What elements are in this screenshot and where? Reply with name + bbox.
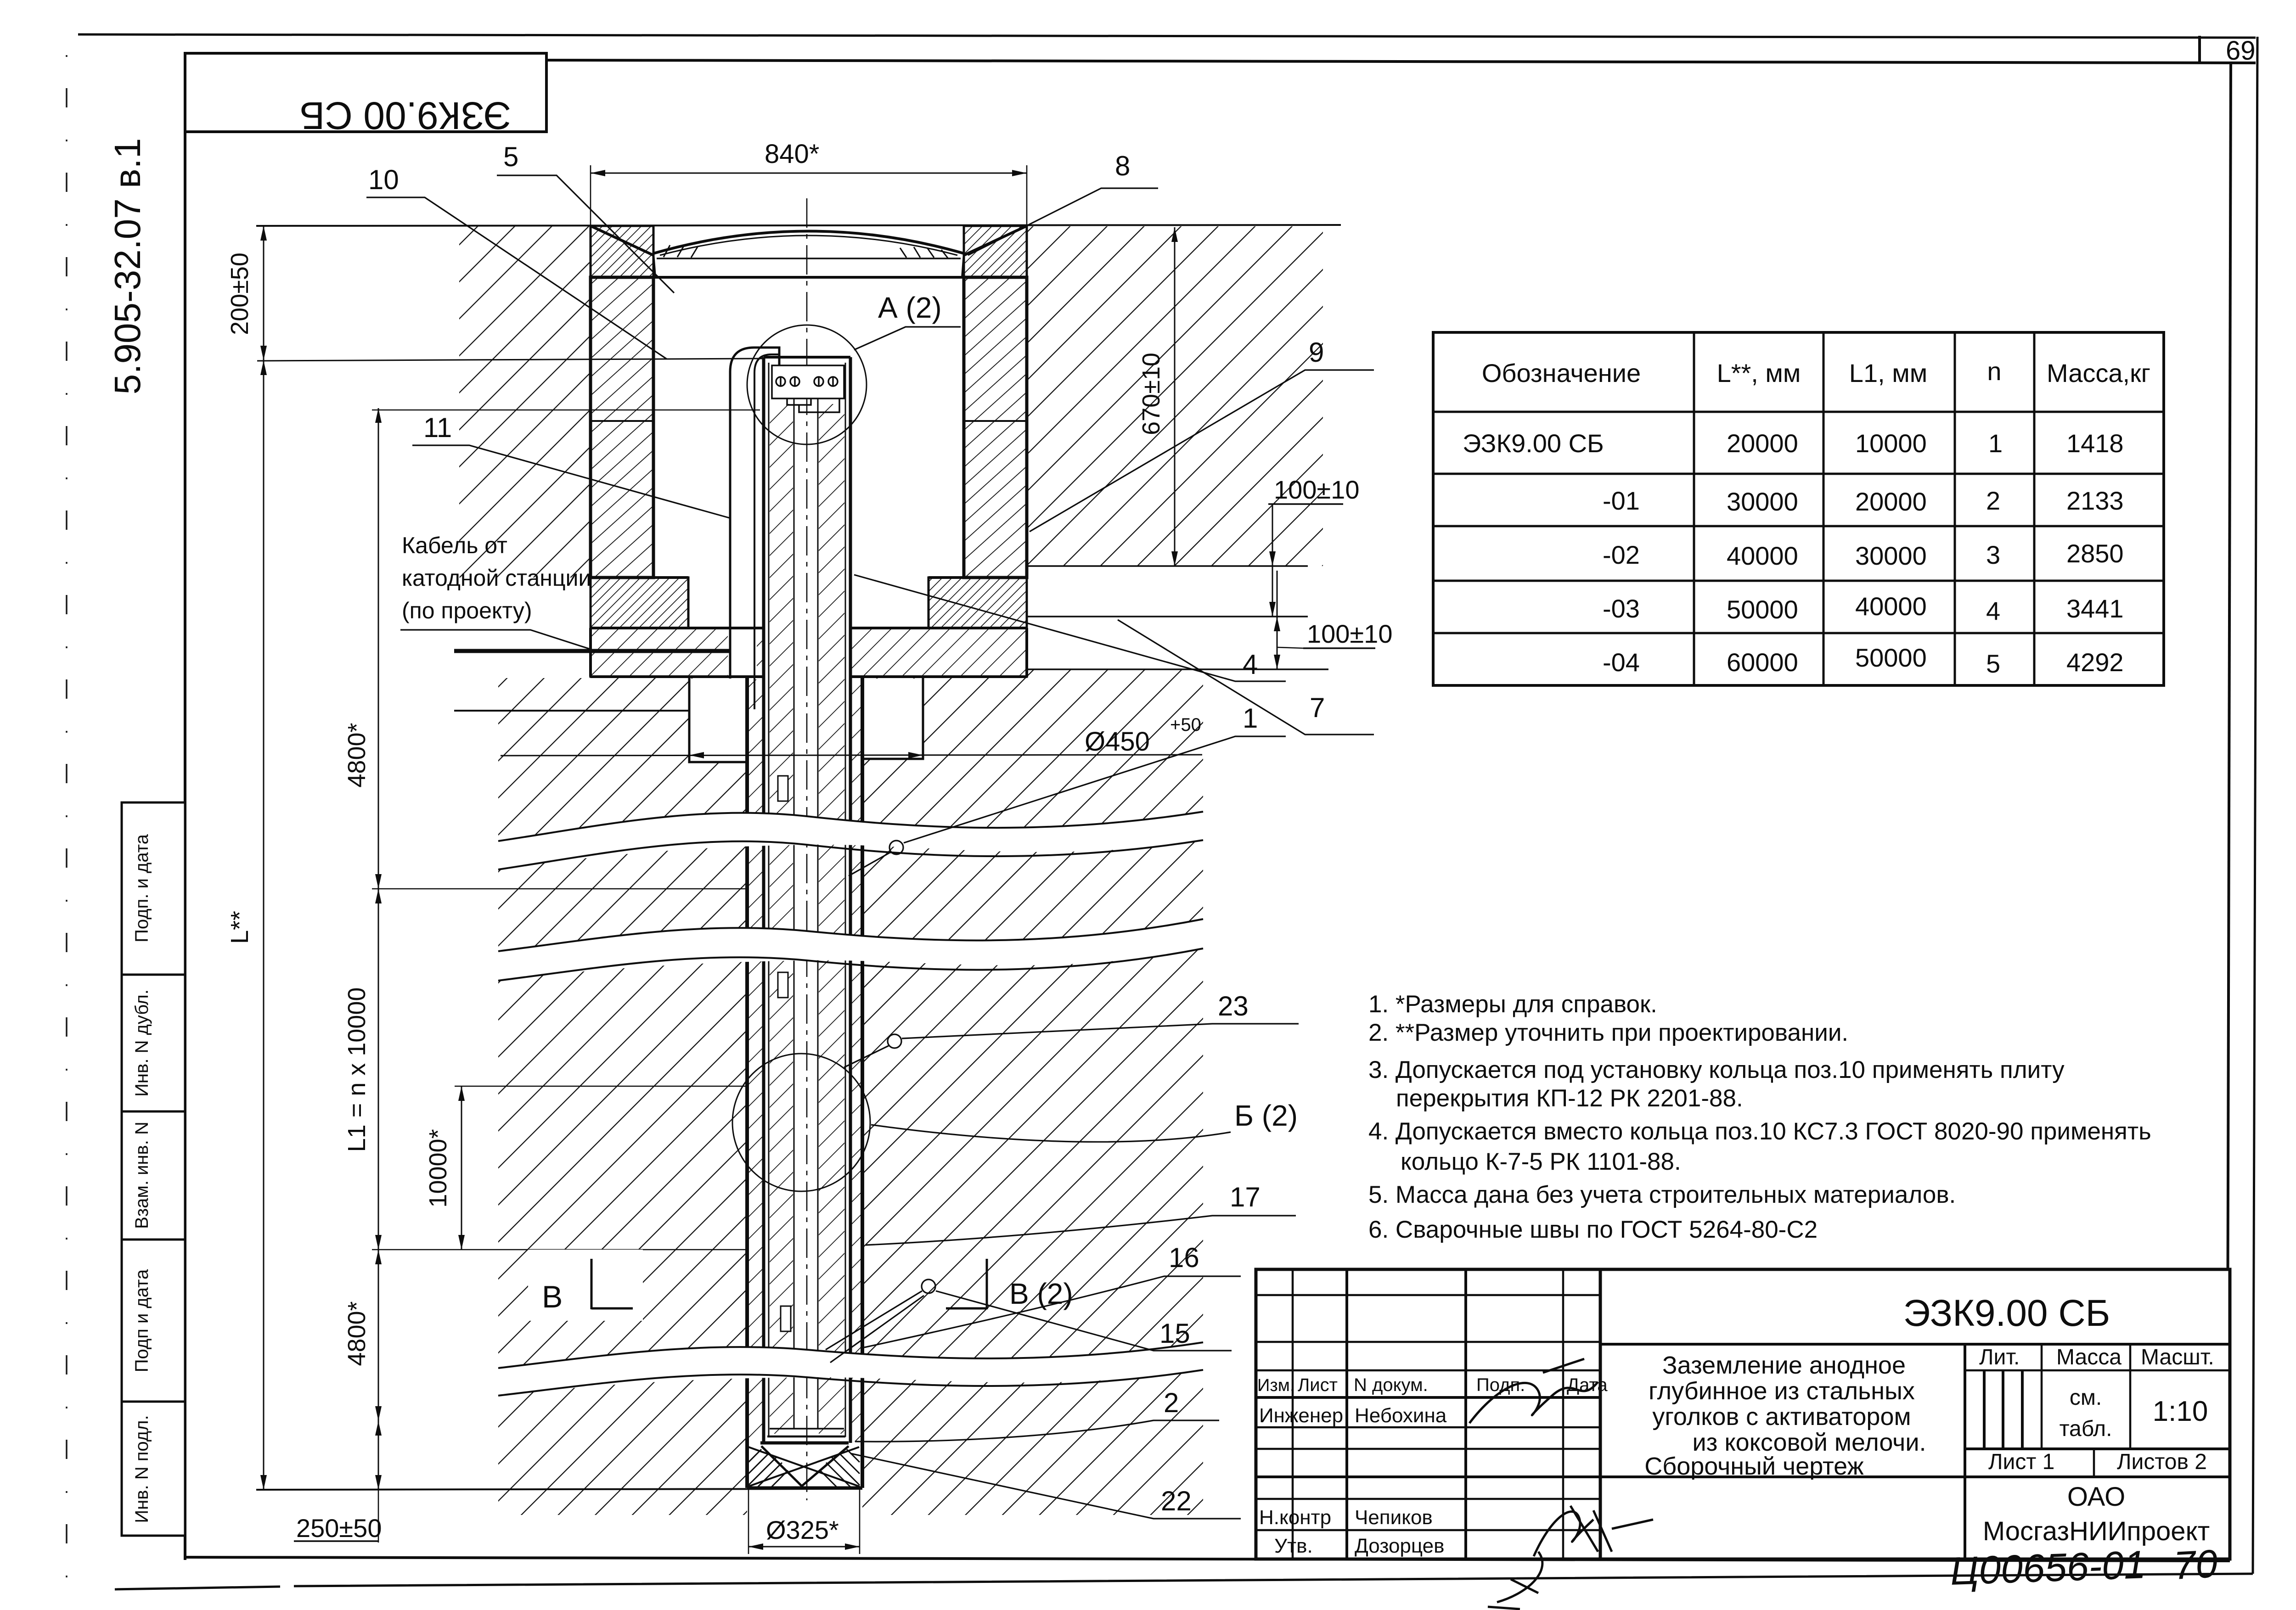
svg-text:3: 3 xyxy=(1986,540,2000,569)
svg-text:Подп и дата: Подп и дата xyxy=(132,1269,152,1372)
svg-text:-03: -03 xyxy=(1603,594,1640,623)
svg-text:ЭЗК9.00 СБ: ЭЗК9.00 СБ xyxy=(1903,1292,2110,1334)
svg-text:50000: 50000 xyxy=(1855,643,1927,672)
svg-text:Подп. и дата: Подп. и дата xyxy=(132,834,152,942)
svg-text:Дозорцев: Дозорцев xyxy=(1355,1535,1444,1557)
svg-text:Изм.: Изм. xyxy=(1257,1376,1294,1395)
svg-text:670±10: 670±10 xyxy=(1137,353,1165,435)
svg-text:30000: 30000 xyxy=(1727,487,1798,516)
svg-text:2: 2 xyxy=(1986,486,2000,515)
svg-text:Масса: Масса xyxy=(2056,1345,2122,1369)
svg-text:4292: 4292 xyxy=(2066,648,2124,677)
svg-text:60000: 60000 xyxy=(1727,648,1798,677)
svg-text:Ц00656-01: Ц00656-01 xyxy=(1949,1543,2146,1593)
svg-text:Инв. N подл.: Инв. N подл. xyxy=(132,1415,152,1523)
svg-text:Листов 2: Листов 2 xyxy=(2117,1450,2207,1474)
svg-text:L1 = n x 10000: L1 = n x 10000 xyxy=(343,987,371,1152)
svg-text:5: 5 xyxy=(503,141,518,172)
svg-text:см.: см. xyxy=(2070,1386,2102,1410)
svg-text:ЭЗК9.00 СБ: ЭЗК9.00 СБ xyxy=(1463,429,1604,458)
svg-text:Лит.: Лит. xyxy=(1979,1345,2020,1369)
svg-text:69: 69 xyxy=(2226,36,2256,66)
svg-text:100±10: 100±10 xyxy=(1274,475,1359,504)
svg-text:5: 5 xyxy=(1986,649,2000,678)
svg-text:Кабель от: Кабель от xyxy=(402,533,507,558)
svg-text:5. Масса дана без учета строит: 5. Масса дана без учета строительных мат… xyxy=(1368,1181,1956,1208)
svg-text:-04: -04 xyxy=(1603,648,1640,677)
svg-text:10: 10 xyxy=(368,164,399,195)
svg-text:L1, мм: L1, мм xyxy=(1849,359,1927,387)
svg-text:5.905-32.07 в.1: 5.905-32.07 в.1 xyxy=(107,138,148,394)
svg-text:9: 9 xyxy=(1309,337,1324,368)
svg-text:10000: 10000 xyxy=(1855,429,1927,458)
svg-text:+50: +50 xyxy=(1170,715,1201,735)
svg-text:ОАО: ОАО xyxy=(2067,1482,2125,1512)
svg-text:Инв. N дубл.: Инв. N дубл. xyxy=(132,989,152,1097)
svg-text:2850: 2850 xyxy=(2066,539,2124,568)
svg-text:Дата: Дата xyxy=(1567,1375,1608,1395)
svg-text:1: 1 xyxy=(1988,429,2003,458)
svg-text:2133: 2133 xyxy=(2066,486,2124,515)
svg-text:Обозначение: Обозначение xyxy=(1482,359,1641,387)
svg-text:20000: 20000 xyxy=(1855,487,1927,516)
svg-text:Б (2): Б (2) xyxy=(1234,1099,1298,1132)
svg-text:15: 15 xyxy=(1159,1318,1190,1349)
svg-text:8: 8 xyxy=(1115,151,1130,181)
svg-text:22: 22 xyxy=(1161,1486,1192,1516)
svg-text:Небохина: Небохина xyxy=(1355,1404,1447,1427)
svg-text:30000: 30000 xyxy=(1855,541,1927,570)
svg-text:6. Сварочные швы по ГОСТ 5264-: 6. Сварочные швы по ГОСТ 5264-80-С2 xyxy=(1368,1216,1818,1243)
svg-text:250±50: 250±50 xyxy=(296,1514,382,1543)
svg-text:4. Допускается вместо кольца п: 4. Допускается вместо кольца поз.10 КС7.… xyxy=(1368,1118,2151,1145)
svg-text:2: 2 xyxy=(1164,1387,1179,1418)
svg-text:4: 4 xyxy=(1243,649,1258,680)
svg-text:16: 16 xyxy=(1169,1242,1199,1273)
svg-text:840*: 840* xyxy=(765,139,819,169)
svg-text:А (2): А (2) xyxy=(878,291,942,324)
svg-text:L**: L** xyxy=(226,911,253,944)
svg-text:11: 11 xyxy=(423,412,452,443)
svg-text:23: 23 xyxy=(1218,991,1249,1021)
svg-text:ЭЗК9.00 СБ: ЭЗК9.00 СБ xyxy=(299,94,512,137)
svg-text:Н.контр: Н.контр xyxy=(1259,1506,1331,1529)
svg-text:табл.: табл. xyxy=(2060,1417,2112,1441)
svg-text:3. Допускается под установку к: 3. Допускается под установку кольца поз.… xyxy=(1368,1056,2065,1083)
svg-text:3441: 3441 xyxy=(2066,594,2124,623)
svg-text:4800*: 4800* xyxy=(343,723,371,787)
svg-text:7: 7 xyxy=(1310,692,1325,723)
svg-text:4: 4 xyxy=(1986,596,2000,625)
svg-text:1. *Размеры для справок.: 1. *Размеры для справок. xyxy=(1368,991,1657,1018)
svg-text:перекрытия КП-12 РК 2201-88.: перекрытия КП-12 РК 2201-88. xyxy=(1396,1085,1743,1112)
svg-text:кольцо К-7-5 РК 1101-88.: кольцо К-7-5 РК 1101-88. xyxy=(1401,1148,1681,1175)
svg-text:L**, мм: L**, мм xyxy=(1717,359,1801,387)
svg-text:(по проекту): (по проекту) xyxy=(402,598,532,623)
svg-text:70: 70 xyxy=(2172,1542,2219,1588)
svg-text:4800*: 4800* xyxy=(343,1301,371,1366)
svg-text:17: 17 xyxy=(1230,1182,1261,1212)
svg-text:Ø450: Ø450 xyxy=(1085,727,1150,757)
svg-text:из коксовой мелочи.: из коксовой мелочи. xyxy=(1693,1429,1926,1456)
svg-text:1: 1 xyxy=(1243,703,1258,734)
svg-text:В: В xyxy=(542,1279,563,1314)
svg-text:1418: 1418 xyxy=(2066,429,2124,458)
svg-text:20000: 20000 xyxy=(1727,429,1798,458)
svg-text:-02: -02 xyxy=(1603,540,1640,569)
svg-text:Лист: Лист xyxy=(1298,1375,1338,1395)
svg-text:В (2): В (2) xyxy=(1009,1277,1073,1310)
svg-text:Лист 1: Лист 1 xyxy=(1988,1450,2054,1474)
svg-text:Чепиков: Чепиков xyxy=(1355,1506,1433,1529)
svg-text:Взам. инв. N: Взам. инв. N xyxy=(132,1122,152,1229)
svg-text:2. **Размер уточнить при проек: 2. **Размер уточнить при проектировании. xyxy=(1368,1019,1848,1046)
svg-text:глубинное из стальных: глубинное из стальных xyxy=(1649,1377,1915,1405)
svg-text:уголков с активатором: уголков с активатором xyxy=(1652,1403,1911,1430)
svg-text:50000: 50000 xyxy=(1727,595,1798,624)
svg-text:-01: -01 xyxy=(1603,486,1640,515)
svg-text:10000*: 10000* xyxy=(424,1129,452,1207)
svg-text:Заземление анодное: Заземление анодное xyxy=(1662,1352,1906,1379)
svg-text:n: n xyxy=(1987,357,2001,386)
svg-text:катодной станции: катодной станции xyxy=(402,565,591,591)
svg-text:200±50: 200±50 xyxy=(226,252,253,335)
svg-text:100±10: 100±10 xyxy=(1307,619,1392,648)
svg-text:N докум.: N докум. xyxy=(1354,1375,1428,1395)
svg-text:Сборочный чертеж: Сборочный чертеж xyxy=(1644,1453,1863,1480)
svg-text:МосгазНИИпроект: МосгазНИИпроект xyxy=(1983,1516,2210,1546)
svg-text:Масса,кг: Масса,кг xyxy=(2047,359,2150,387)
svg-text:1:10: 1:10 xyxy=(2153,1396,2208,1427)
svg-text:40000: 40000 xyxy=(1727,541,1798,570)
svg-text:Инженер: Инженер xyxy=(1259,1404,1343,1427)
svg-text:Ø325*: Ø325* xyxy=(766,1515,839,1544)
svg-text:Масшт.: Масшт. xyxy=(2141,1345,2214,1369)
svg-text:Утв.: Утв. xyxy=(1274,1535,1313,1557)
svg-text:40000: 40000 xyxy=(1855,592,1927,621)
